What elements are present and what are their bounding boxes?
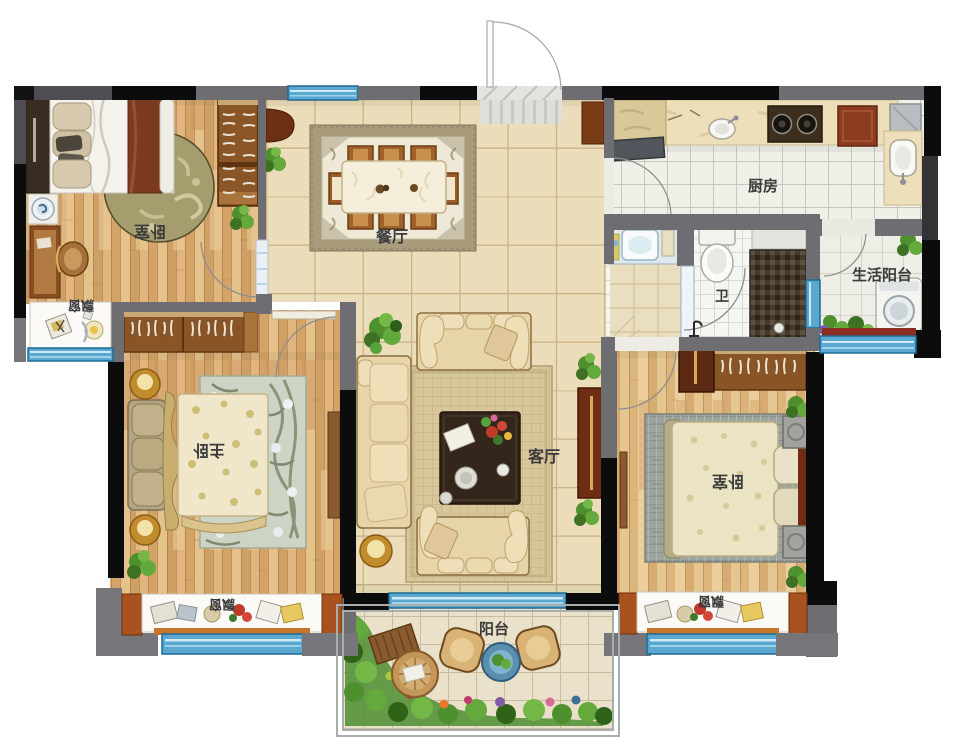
svg-text:主卧: 主卧	[193, 441, 225, 460]
svg-text:卧室: 卧室	[134, 222, 166, 241]
svg-text:厨房: 厨房	[748, 177, 778, 195]
svg-text:餐厅: 餐厅	[375, 227, 408, 246]
svg-text:飘窗: 飘窗	[209, 597, 235, 612]
svg-text:卫: 卫	[715, 288, 729, 304]
svg-text:卧室: 卧室	[712, 472, 744, 491]
svg-text:飘窗: 飘窗	[698, 594, 724, 609]
svg-text:阳台: 阳台	[479, 620, 509, 638]
svg-text:飘窗: 飘窗	[68, 298, 94, 313]
svg-text:生活阳台: 生活阳台	[852, 266, 912, 284]
svg-text:客厅: 客厅	[528, 447, 560, 466]
